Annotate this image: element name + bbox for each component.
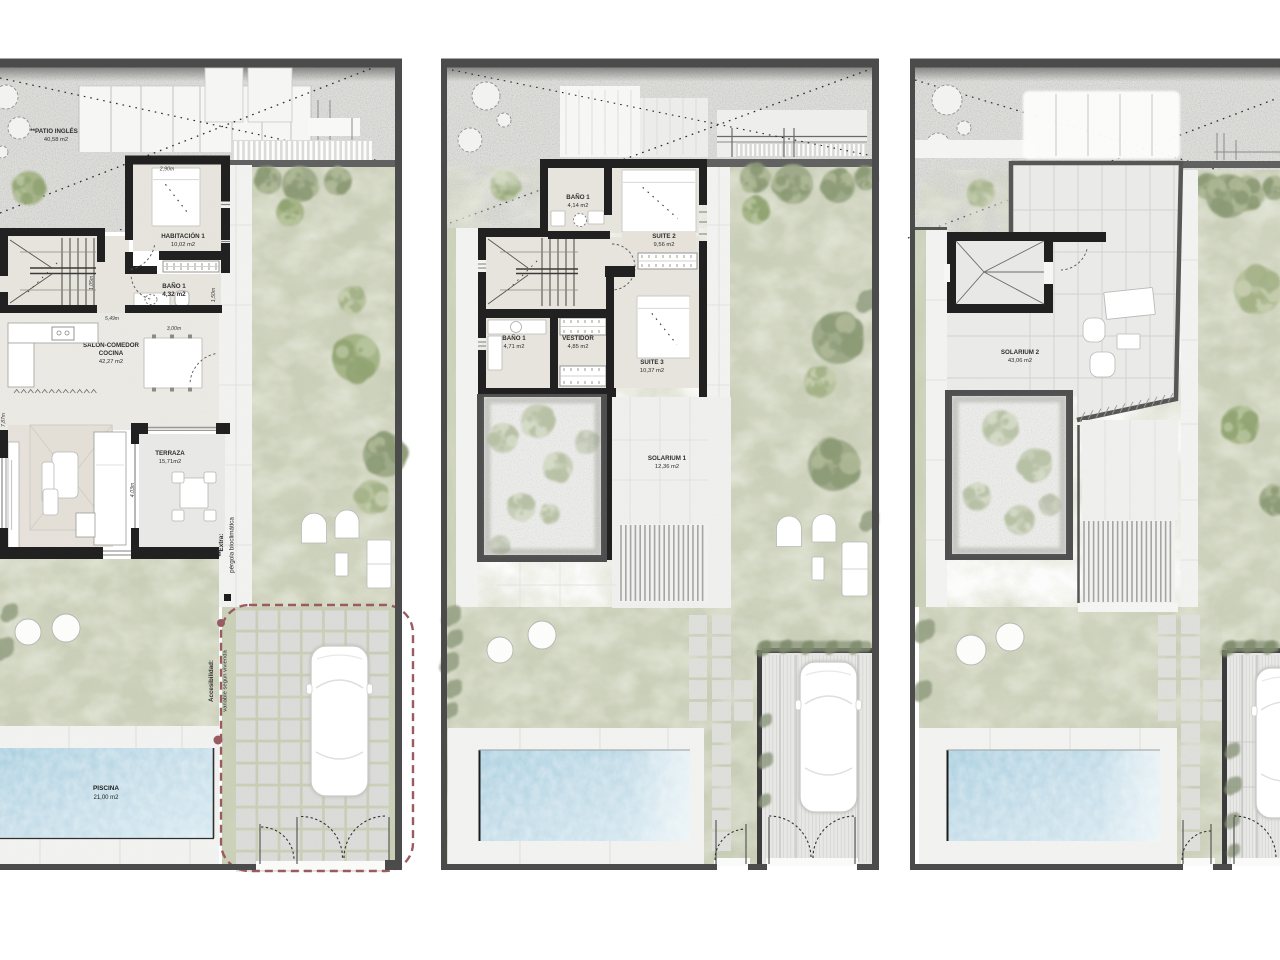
svg-text:BAÑO 1: BAÑO 1 bbox=[502, 335, 526, 342]
svg-text:21,00 m2: 21,00 m2 bbox=[93, 795, 119, 801]
svg-text:43,06 m2: 43,06 m2 bbox=[1008, 358, 1032, 364]
svg-text:2,90m: 2,90m bbox=[159, 167, 175, 173]
svg-text:5,49m: 5,49m bbox=[105, 316, 119, 322]
svg-text:VESTIDOR: VESTIDOR bbox=[562, 335, 594, 342]
svg-text:**Extra:: **Extra: bbox=[218, 534, 225, 557]
svg-text:4,32 m2: 4,32 m2 bbox=[162, 291, 186, 298]
svg-text:SOLARIUM 1: SOLARIUM 1 bbox=[648, 455, 687, 462]
svg-text:pérgola bioclimática: pérgola bioclimática bbox=[229, 517, 236, 573]
svg-text:SOLARIUM 2: SOLARIUM 2 bbox=[1001, 349, 1040, 356]
svg-text:3,00m: 3,00m bbox=[167, 326, 182, 332]
svg-text:Accesibilidad:: Accesibilidad: bbox=[208, 660, 215, 702]
svg-text:42,27 m2: 42,27 m2 bbox=[99, 359, 123, 365]
svg-text:BAÑO 1: BAÑO 1 bbox=[162, 283, 186, 290]
svg-text:4,14 m2: 4,14 m2 bbox=[568, 203, 589, 209]
svg-text:HABITACIÓN 1: HABITACIÓN 1 bbox=[161, 232, 205, 240]
svg-text:1,50m: 1,50m bbox=[211, 287, 217, 302]
svg-text:12,36 m2: 12,36 m2 bbox=[655, 464, 679, 470]
svg-text:**PATIO INGLÉS: **PATIO INGLÉS bbox=[30, 127, 78, 135]
svg-text:40,58 m2: 40,58 m2 bbox=[44, 137, 68, 143]
svg-text:SUITE 3: SUITE 3 bbox=[640, 359, 664, 366]
svg-text:BAÑO 1: BAÑO 1 bbox=[566, 194, 590, 201]
svg-text:COCINA: COCINA bbox=[99, 350, 124, 357]
svg-text:10,37 m2: 10,37 m2 bbox=[640, 368, 664, 374]
svg-text:4,85 m2: 4,85 m2 bbox=[568, 344, 589, 350]
svg-text:4,71 m2: 4,71 m2 bbox=[504, 344, 525, 350]
svg-text:TERRAZA: TERRAZA bbox=[155, 450, 185, 457]
svg-text:15,71m2: 15,71m2 bbox=[159, 459, 182, 465]
svg-text:7,87m: 7,87m bbox=[1, 413, 7, 427]
svg-text:PISCINA: PISCINA bbox=[93, 785, 119, 792]
svg-text:variable según vivienda: variable según vivienda bbox=[223, 650, 229, 712]
svg-text:9,56 m2: 9,56 m2 bbox=[654, 242, 675, 248]
svg-text:SUITE 2: SUITE 2 bbox=[652, 233, 676, 240]
svg-text:10,02 m2: 10,02 m2 bbox=[171, 242, 195, 248]
